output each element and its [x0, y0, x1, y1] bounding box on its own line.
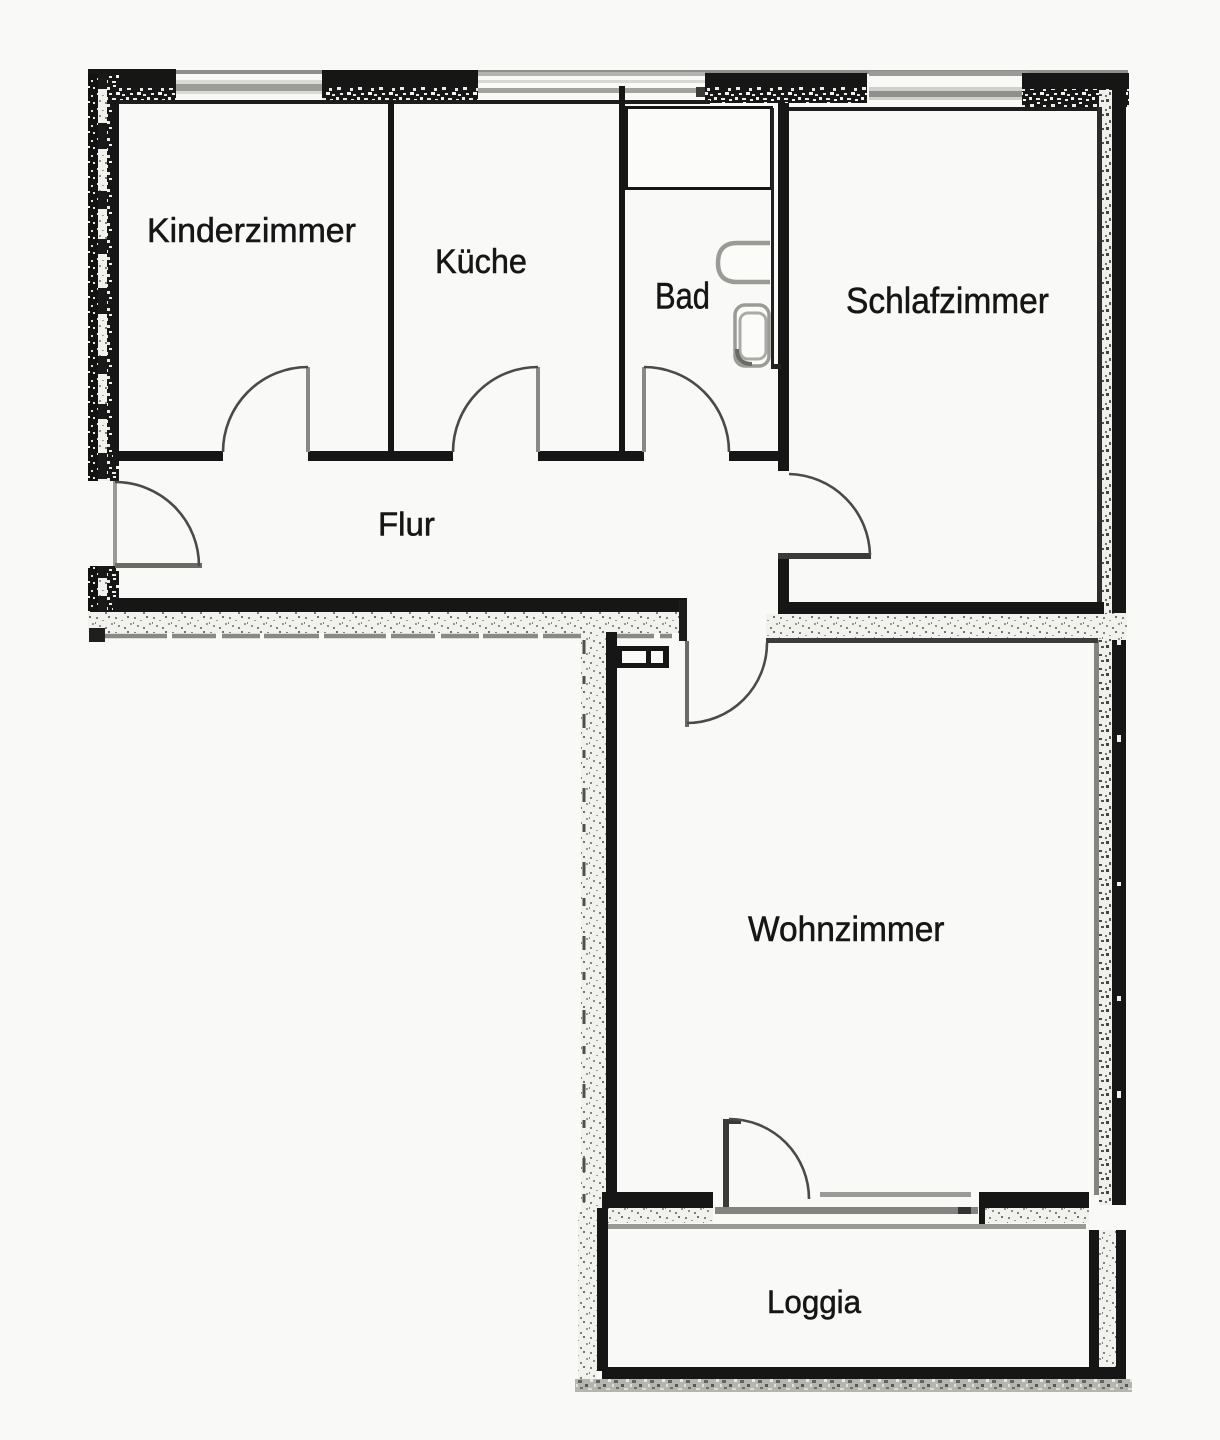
- svg-text:Küche: Küche: [435, 243, 527, 281]
- svg-text:Kinderzimmer: Kinderzimmer: [147, 212, 356, 250]
- svg-text:Schlafzimmer: Schlafzimmer: [846, 281, 1049, 321]
- svg-text:Loggia: Loggia: [767, 1284, 861, 1321]
- svg-text:Bad: Bad: [655, 276, 710, 317]
- svg-text:Wohnzimmer: Wohnzimmer: [748, 910, 944, 949]
- svg-text:Flur: Flur: [378, 506, 435, 543]
